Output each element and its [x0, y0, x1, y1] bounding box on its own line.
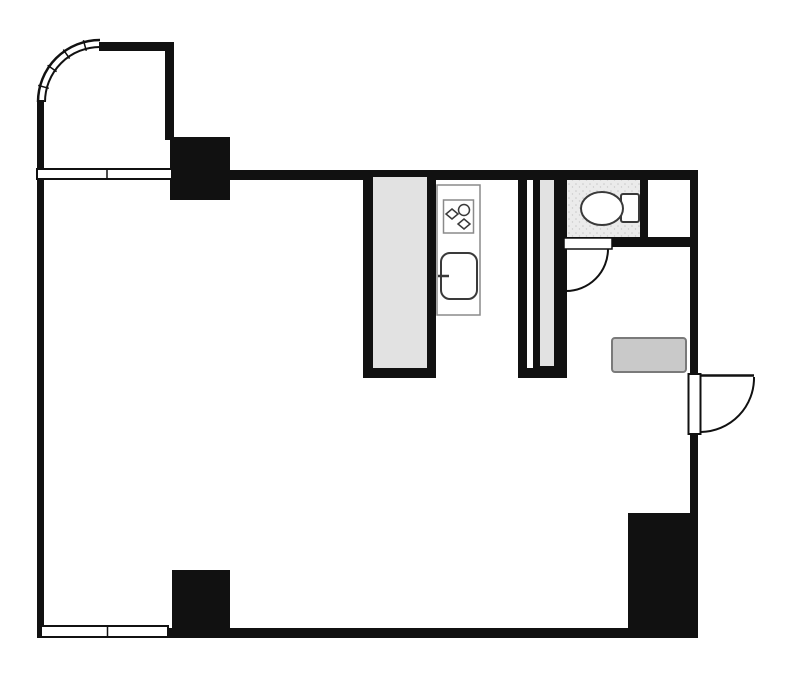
pillar-bottom-left: [172, 570, 230, 637]
window-upper-left: [37, 169, 172, 179]
wc-door-leaf: [564, 238, 612, 249]
entrance-door-swing-arc: [701, 377, 754, 432]
curved-window-outer-arc: [38, 40, 100, 102]
left-wall: [37, 100, 44, 637]
hall-wall-thin-bar: [518, 175, 527, 368]
toilet-bowl: [581, 192, 623, 225]
window-bottom-left: [41, 626, 168, 637]
walls: [37, 42, 698, 638]
kitchen-wall-cap: [363, 368, 436, 378]
hall-wall-fill: [540, 180, 554, 366]
curved-window-inner-arc: [45, 47, 100, 102]
burner-icon: [459, 205, 470, 216]
shoe-cabinet: [612, 338, 686, 372]
pillar-bottom-right: [628, 513, 698, 637]
balcony-side-wall: [165, 42, 174, 140]
kitchen-wall-fill: [373, 177, 427, 368]
wc-right-wall: [640, 180, 648, 247]
kitchen-wall-left-bar: [363, 175, 373, 368]
windows: [37, 169, 172, 637]
wc-door: [564, 238, 612, 291]
balcony-top-wall: [99, 42, 174, 51]
kitchen-wall-right-bar: [427, 175, 436, 368]
right-wall-upper: [690, 170, 698, 375]
hall-wall-cap: [518, 368, 567, 378]
kitchen-sink: [438, 253, 477, 299]
curved-corner-window: [38, 40, 100, 102]
toilet: [581, 192, 639, 225]
floor-plan-drawing: [0, 0, 787, 696]
entrance-door-leaf: [689, 374, 701, 434]
floor-plan-canvas: [0, 0, 787, 696]
wc-door-swing-arc: [566, 249, 608, 291]
pillar-top-left: [170, 137, 230, 200]
entrance-door: [689, 374, 755, 434]
